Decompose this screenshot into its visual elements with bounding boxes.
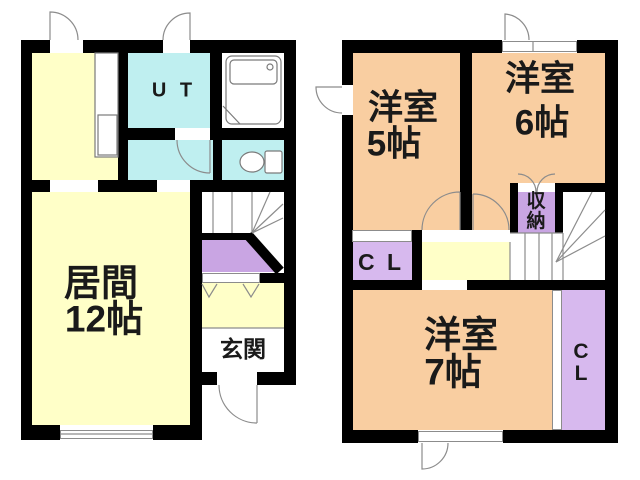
- entrance-hall-strip: [202, 283, 284, 328]
- wall: [555, 183, 563, 233]
- closet-left-front: [352, 230, 412, 242]
- bathroom-unit-icon: [226, 56, 281, 124]
- storage-char: 収: [526, 192, 545, 212]
- label-room7-size: 7帖: [424, 354, 482, 393]
- label-room6-name: 洋室: [505, 62, 575, 99]
- wall: [467, 280, 605, 290]
- room-kitchen: [32, 53, 118, 180]
- wall: [190, 40, 296, 53]
- room5-casement-icon: [316, 87, 342, 113]
- wall: [21, 53, 32, 440]
- window-living-south: [60, 430, 153, 439]
- room7-casement-icon: [422, 443, 448, 469]
- closet-right-char: C: [573, 341, 588, 363]
- wall: [32, 180, 50, 192]
- wall: [342, 430, 418, 443]
- wall: [510, 183, 518, 233]
- closet-right-front: [552, 290, 562, 430]
- wall: [21, 40, 50, 53]
- window-5jo-west: [342, 85, 353, 115]
- wall: [284, 40, 296, 385]
- wall: [202, 180, 296, 192]
- room-6jo-lower: [472, 183, 510, 230]
- label-living-size: 12帖: [65, 301, 143, 340]
- label-room7-name: 洋室: [424, 317, 498, 356]
- wall: [342, 115, 353, 443]
- wall: [460, 53, 472, 230]
- kitchen-casement-icon: [50, 12, 78, 40]
- wall: [202, 233, 250, 240]
- wall: [260, 273, 284, 283]
- label-closet-left: C L: [358, 250, 404, 274]
- label-storage: 収 納: [526, 192, 545, 232]
- wall: [213, 140, 222, 180]
- wall: [21, 425, 60, 440]
- wall: [210, 128, 296, 140]
- label-room5-size: 5帖: [367, 127, 421, 164]
- wall: [257, 372, 296, 385]
- room6-casement-icon: [505, 14, 529, 40]
- wall: [98, 180, 157, 192]
- wall: [342, 53, 353, 85]
- label-entrance: 玄関: [220, 337, 266, 361]
- stairwell-2f-run: [510, 233, 563, 280]
- window-6jo-north: [502, 41, 577, 52]
- wall: [202, 372, 217, 385]
- wall: [118, 53, 128, 180]
- wall: [342, 40, 502, 53]
- wall: [342, 280, 420, 290]
- storage-char: 納: [526, 212, 545, 232]
- label-room5-name: 洋室: [368, 91, 438, 128]
- floorplan-canvas: U T 居間 12帖 玄関 洋室 5帖 洋室 6帖 洋室 7帖 C L C L …: [0, 0, 640, 480]
- wall: [83, 40, 163, 53]
- room-toilet: [222, 140, 284, 180]
- wall: [503, 430, 618, 443]
- entrance-door-icon: [219, 385, 257, 423]
- bathroom-door-icon: [223, 106, 240, 124]
- utility-casement-icon: [163, 13, 190, 40]
- understair-closet-front: [202, 273, 260, 283]
- label-room6-size: 6帖: [515, 106, 569, 143]
- wall: [577, 40, 618, 53]
- label-closet-right: C L: [573, 341, 588, 385]
- wall: [210, 53, 222, 128]
- hall-2f: [422, 242, 510, 280]
- bathtub-icon: [230, 60, 277, 84]
- wall: [563, 183, 605, 192]
- room-washroom: [128, 140, 213, 180]
- closet-right-char: L: [573, 363, 588, 385]
- wall: [118, 128, 175, 140]
- wall: [605, 53, 618, 443]
- wall: [190, 180, 202, 440]
- bathtub-drain-icon: [267, 64, 273, 70]
- stairwell-2f-winder: [563, 192, 605, 280]
- window-7jo-south: [418, 431, 503, 442]
- label-utility: U T: [152, 81, 196, 102]
